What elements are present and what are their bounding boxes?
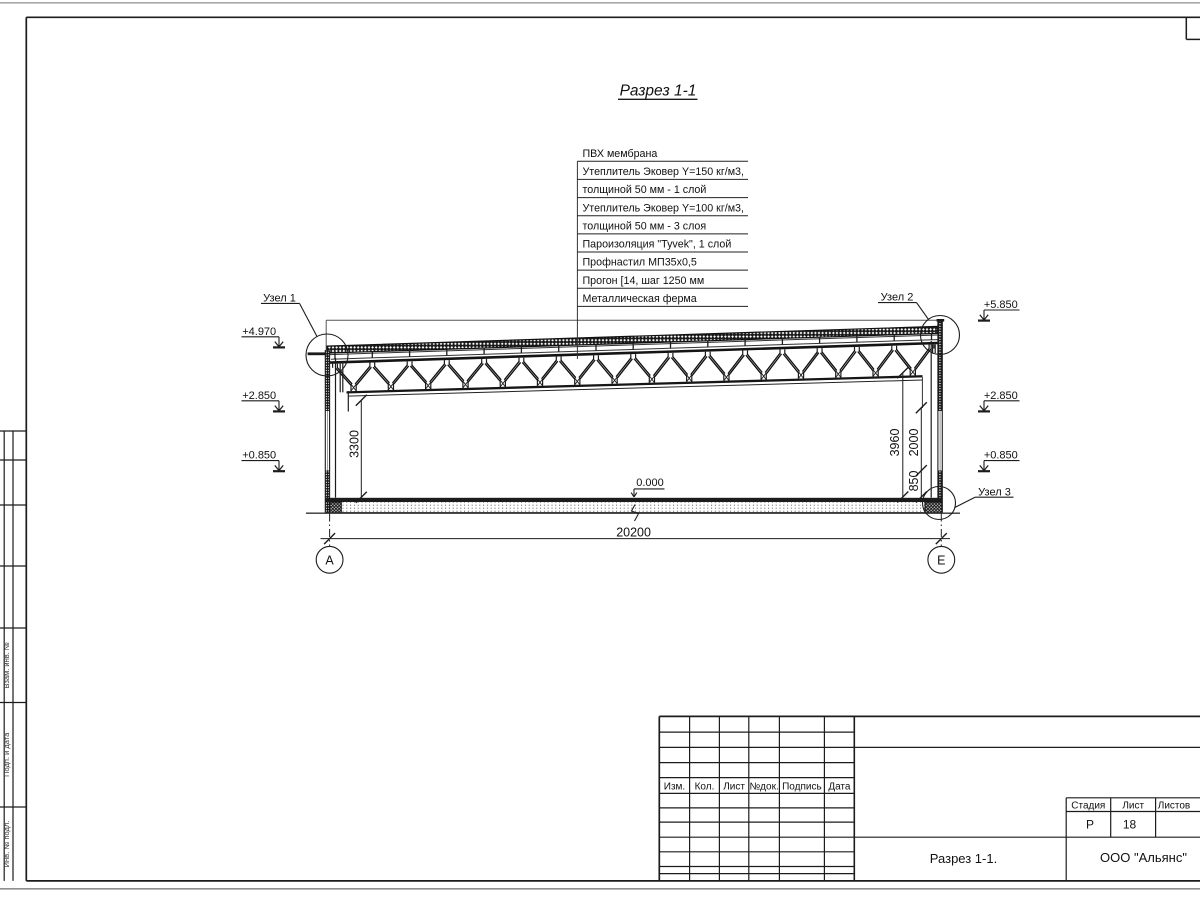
svg-text:20200: 20200 [616,526,651,540]
svg-text:+2.850: +2.850 [242,390,276,402]
svg-text:толщиной 50 мм - 3 слоя: толщиной 50 мм - 3 слоя [583,221,707,233]
svg-text:3960: 3960 [888,429,902,457]
svg-text:+0.850: +0.850 [984,450,1018,462]
svg-text:А: А [325,554,334,568]
svg-text:Е: Е [937,554,945,568]
svg-text:Лист: Лист [1122,801,1144,812]
svg-text:Разрез 1-1.: Разрез 1-1. [930,851,997,866]
svg-text:Инв. № подл.: Инв. № подл. [2,821,11,868]
svg-text:Кол.: Кол. [695,782,715,793]
svg-text:Утеплитель Эковер Y=150 кг/м3,: Утеплитель Эковер Y=150 кг/м3, [583,166,744,178]
svg-text:Подп. и дата: Подп. и дата [2,732,11,777]
svg-text:Прогон [14, шаг 1250 мм: Прогон [14, шаг 1250 мм [583,275,705,287]
svg-text:Утеплитель Эковер Y=100 кг/м3,: Утеплитель Эковер Y=100 кг/м3, [583,202,744,214]
svg-text:Профнастил МП35х0,5: Профнастил МП35х0,5 [583,257,697,269]
svg-text:Лист: Лист [723,782,745,793]
svg-text:18: 18 [1123,818,1137,832]
svg-text:3300: 3300 [347,430,361,458]
svg-text:Узел 3: Узел 3 [978,486,1011,498]
svg-text:Металлическая ферма: Металлическая ферма [583,293,697,305]
svg-text:2000: 2000 [907,429,921,457]
svg-text:толщиной 50 мм - 1 слой: толщиной 50 мм - 1 слой [583,184,707,196]
svg-text:Узел 1: Узел 1 [263,293,296,305]
svg-text:Листов: Листов [1158,801,1191,812]
svg-text:Стадия: Стадия [1071,801,1105,812]
svg-text:Узел 2: Узел 2 [881,292,914,304]
svg-text:850: 850 [907,471,921,492]
svg-text:Дата: Дата [828,782,851,793]
svg-text:Разрез 1-1: Разрез 1-1 [620,83,697,100]
svg-text:+5.850: +5.850 [984,299,1018,311]
svg-text:Подпись: Подпись [782,782,822,793]
svg-text:0.000: 0.000 [636,477,664,489]
svg-text:ПВХ мембрана: ПВХ мембрана [583,148,658,160]
svg-text:+2.850: +2.850 [984,390,1018,402]
svg-text:Р: Р [1086,818,1094,832]
svg-text:ООО "Альянс": ООО "Альянс" [1100,850,1187,865]
svg-text:+4.970: +4.970 [242,326,276,338]
svg-text:Взам. инв. №: Взам. инв. № [2,642,11,688]
svg-text:№док.: №док. [749,782,778,793]
svg-text:+0.850: +0.850 [242,450,276,462]
svg-text:Пароизоляция "Tyvek", 1 слой: Пароизоляция "Tyvek", 1 слой [583,239,732,251]
svg-text:Изм.: Изм. [664,782,685,793]
